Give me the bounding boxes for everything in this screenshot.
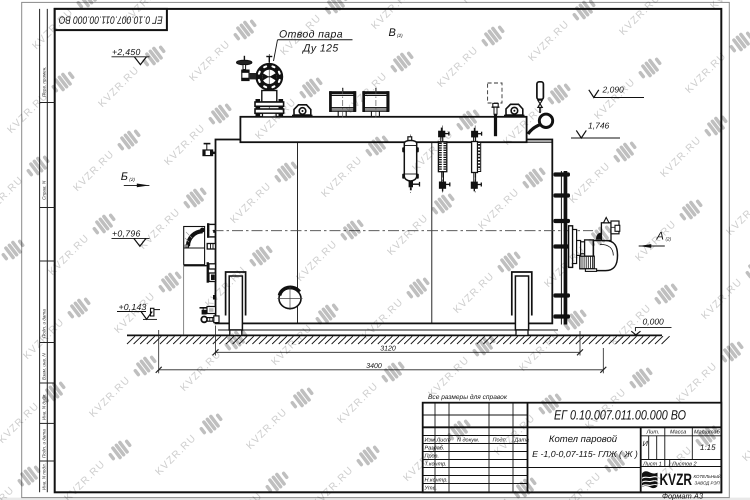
svg-text:В: В (389, 27, 396, 39)
svg-text:Формат А3: Формат А3 (662, 492, 704, 500)
svg-text:Инв. N подл.: Инв. N подл. (42, 463, 47, 490)
svg-text:Б: Б (121, 171, 128, 183)
svg-text:Утв.: Утв. (424, 486, 438, 492)
svg-text:(2): (2) (397, 33, 403, 38)
svg-text:+0,796: +0,796 (112, 228, 141, 238)
svg-text:Лит.: Лит. (646, 430, 660, 436)
svg-text:Котел паровой: Котел паровой (549, 434, 618, 445)
svg-text:Подп. и дата: Подп. и дата (42, 429, 47, 458)
svg-text:3120: 3120 (380, 345, 396, 352)
svg-text:ЕГ 0.10.007.011.00.000 ВО: ЕГ 0.10.007.011.00.000 ВО (554, 408, 686, 423)
svg-text:Н.контр.: Н.контр. (425, 478, 448, 484)
svg-text:(2): (2) (129, 177, 135, 182)
svg-text:Масса: Масса (670, 430, 686, 436)
svg-text:Справ. N: Справ. N (42, 180, 47, 200)
svg-text:И: И (643, 439, 649, 448)
svg-text:Взам. инв. N: Взам. инв. N (42, 353, 47, 380)
svg-text:Лист 1: Лист 1 (642, 461, 662, 467)
svg-text:+2,450: +2,450 (112, 47, 141, 57)
svg-text:КОТЕЛЬНЫЙ: КОТЕЛЬНЫЙ (694, 474, 722, 479)
svg-text:Все размеры для справок: Все размеры для справок (428, 394, 508, 401)
svg-text:3400: 3400 (366, 363, 382, 370)
svg-text:ЗАВОД РЭП: ЗАВОД РЭП (695, 481, 721, 486)
svg-text:Ду 125: Ду 125 (302, 43, 339, 55)
svg-text:1,746: 1,746 (588, 121, 610, 131)
